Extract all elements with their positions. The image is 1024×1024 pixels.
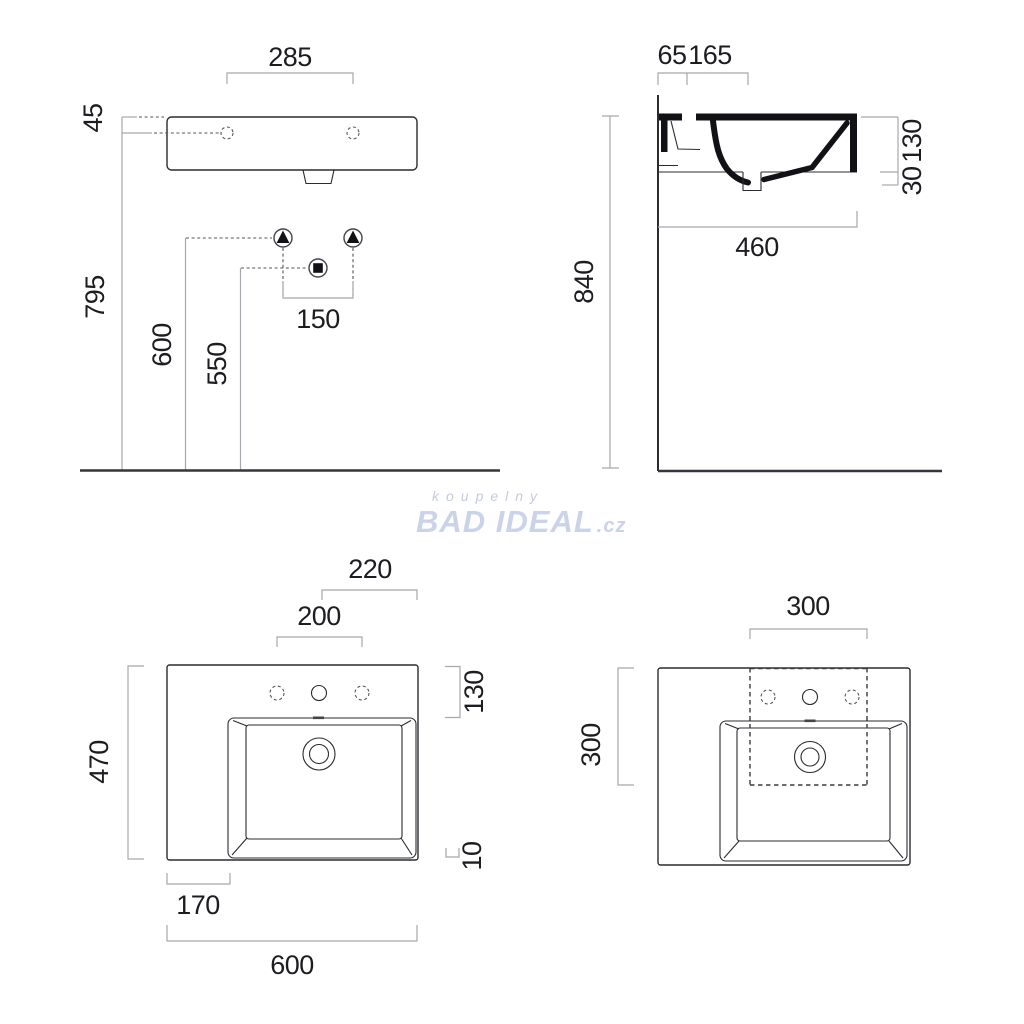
dim-165-label: 165 [688, 40, 732, 70]
plan-hole-right-dashed [355, 686, 369, 700]
technical-drawing-sheet: 285 45 795 600 550 [0, 0, 1024, 1024]
plan-hole-left-dashed [270, 686, 284, 700]
side-section-view: 65 165 840 [569, 40, 942, 471]
plan-bevel-br [401, 838, 412, 855]
cutout-bevel-bl [724, 841, 739, 858]
dim-285-bracket [227, 73, 353, 84]
watermark: koupelny BAD IDEAL.cz [416, 488, 626, 539]
dim-840-label: 840 [569, 260, 599, 304]
watermark-brand: BAD IDEAL.cz [416, 504, 626, 539]
dim-470-label: 470 [84, 740, 114, 784]
supply-symbol-right [344, 229, 362, 247]
dim-150-bracket [283, 281, 353, 298]
section-bowl-slope [764, 123, 847, 180]
plan-bowl-rim [228, 718, 416, 858]
basin-front-outline [167, 117, 417, 170]
dim-45-label: 45 [78, 103, 108, 132]
dim-795-label: 795 [80, 275, 110, 319]
plan-overflow-slot [313, 717, 324, 720]
dim-170-label: 170 [176, 890, 220, 920]
dim-130-plan-label: 130 [459, 670, 489, 714]
cutout-hole-left-dashed [761, 690, 775, 704]
dim-460-label: 460 [735, 232, 779, 262]
cutout-plan-outline [658, 668, 910, 865]
dim-460-bracket [658, 211, 857, 227]
watermark-line1: koupelny [432, 488, 544, 504]
dim-150-label: 150 [296, 304, 340, 334]
cutout-hole-center [803, 690, 818, 705]
dim-550-label: 550 [202, 342, 232, 386]
dim-30-label: 30 [897, 166, 927, 195]
side-hole-right-dashed [347, 127, 359, 139]
plan-drain-outer [303, 738, 335, 770]
dim-65-label: 65 [657, 40, 686, 70]
cutout-bevel-br [889, 841, 903, 858]
cutout-bevel-tl [725, 724, 739, 730]
cutout-hole-right-dashed [845, 690, 859, 704]
cutout-drain-outer [795, 742, 826, 773]
plan-bevel-tl [233, 721, 247, 727]
basin-overflow-front [303, 170, 334, 184]
dim-300d-label: 300 [576, 723, 606, 767]
plan-hole-center [312, 686, 327, 701]
dim-200-bracket [277, 637, 362, 647]
cutout-bevel-tr [889, 724, 902, 730]
drain-symbol [309, 259, 327, 277]
drawing-svg: 285 45 795 600 550 [0, 0, 1024, 1024]
dim-10-label: 10 [457, 841, 487, 870]
cutout-template-dashed [750, 668, 867, 785]
section-wall-bracket [661, 120, 668, 152]
dim-300w-bracket [750, 629, 867, 639]
dim-65-165-bracket [658, 73, 748, 85]
plan-outline [167, 665, 418, 860]
cutout-overflow-slot [805, 720, 816, 723]
basin-section [658, 113, 857, 191]
plan-view: 220 200 130 470 10 170 60 [84, 554, 489, 980]
front-elevation-view: 285 45 795 600 550 [78, 42, 500, 471]
dim-285-label: 285 [268, 42, 312, 72]
dim-220-label: 220 [348, 554, 392, 584]
dim-130-label: 130 [897, 119, 927, 163]
dim-130-plan-bracket [445, 667, 460, 718]
dim-200-label: 200 [297, 601, 341, 631]
plan-bowl-bottom [246, 725, 402, 839]
supply-symbol-left [274, 229, 292, 247]
dim-220-bracket [322, 590, 417, 600]
dim-300w-label: 300 [786, 591, 830, 621]
dim-600w-label: 600 [270, 950, 314, 980]
cutout-drain-inner [801, 748, 819, 766]
section-deck-edge [671, 121, 700, 150]
dim-470-bracket [128, 666, 144, 859]
dim-600w-bracket [167, 925, 417, 941]
plan-cutout-view: 300 300 [576, 591, 910, 865]
dim-300d-bracket [618, 668, 634, 785]
dim-600-label: 600 [147, 323, 177, 367]
dim-170-bracket [167, 873, 230, 884]
plan-drain-inner [310, 745, 329, 764]
plan-bevel-tr [401, 721, 411, 727]
plan-bevel-bl [232, 838, 247, 855]
side-hole-left-dashed [221, 127, 233, 139]
section-tap-hole-gap [682, 113, 696, 123]
